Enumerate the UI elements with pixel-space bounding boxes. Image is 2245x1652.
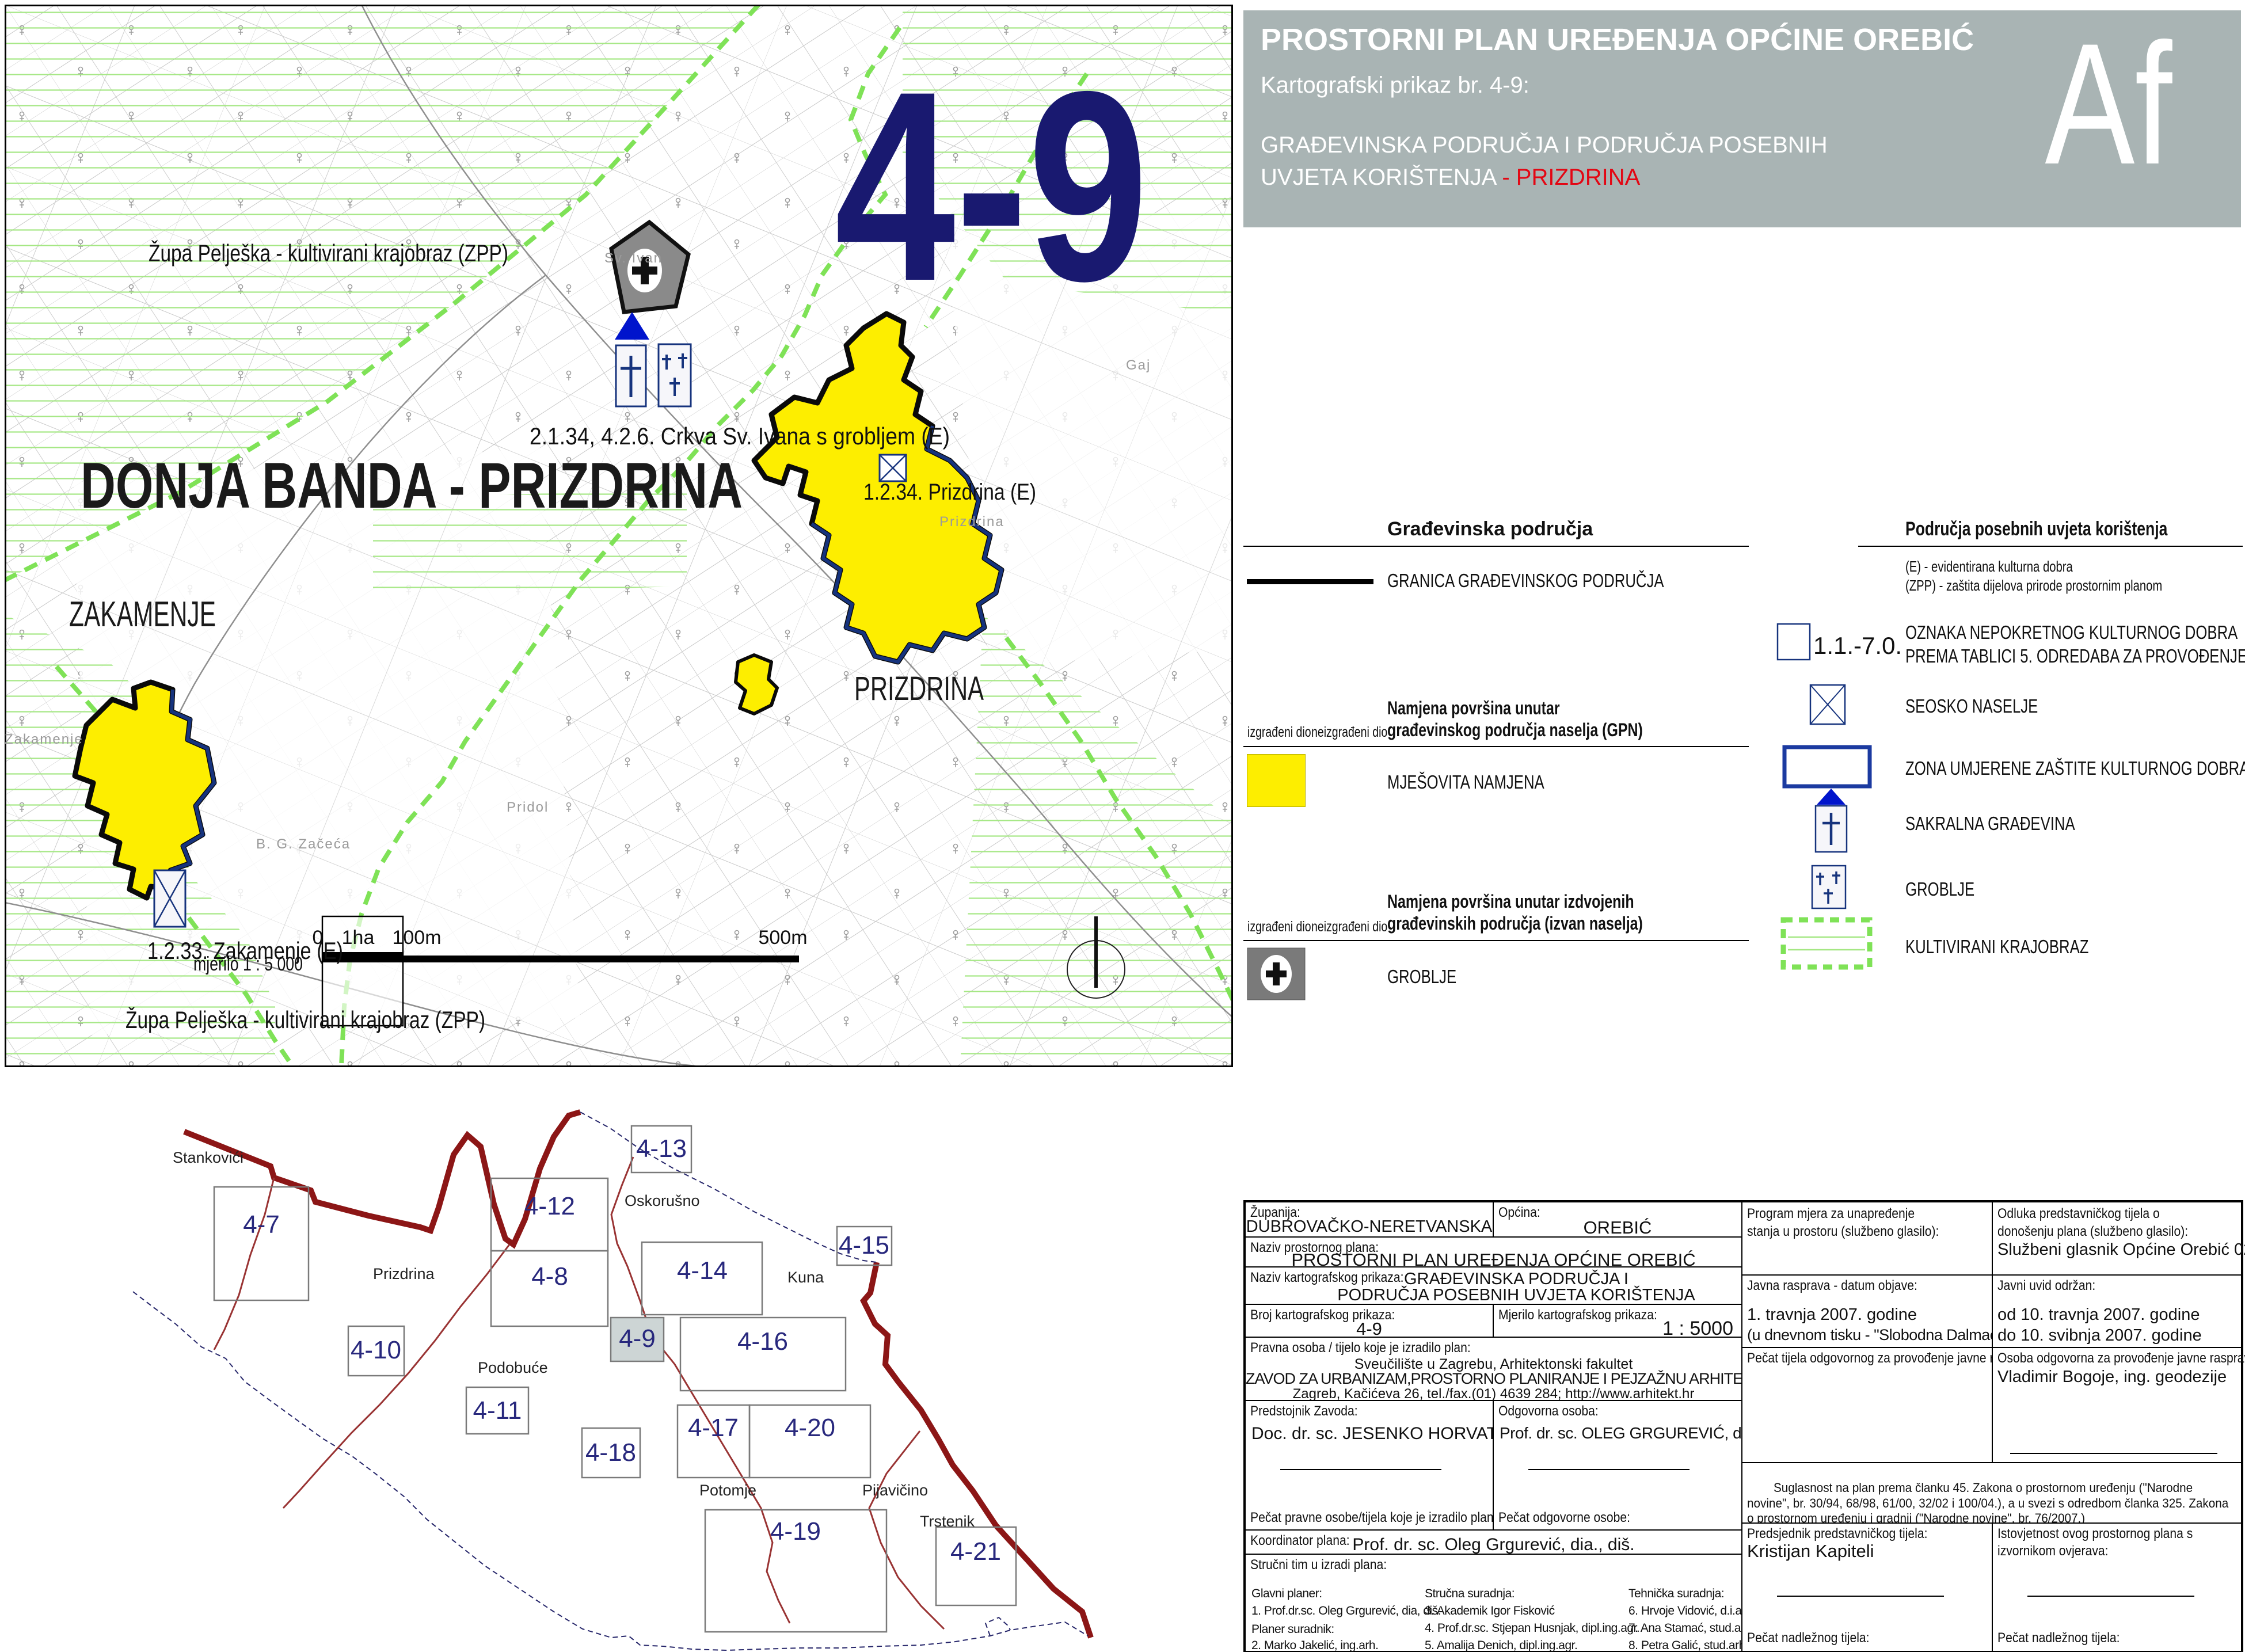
gpn-label: Namjena površina unutar građevinskog pod… bbox=[1387, 698, 1715, 741]
legend-right-divider bbox=[1858, 546, 2243, 547]
scale-0: 0 bbox=[313, 927, 324, 949]
cell-koordinator: Koordinator plana: Prof. dr. sc. Oleg Gr… bbox=[1245, 1529, 1742, 1555]
cell-naziv-prikaza: Naziv kartografskog prikaza: GRAĐEVINSKA… bbox=[1245, 1266, 1742, 1305]
plan-sheet: 4-9 DONJA BANDA - PRIZDRINA Župa Pelješk… bbox=[0, 0, 2245, 1652]
pecat-pravne-label: Pečat pravne osobe/tijela koje je izradi… bbox=[1250, 1510, 1497, 1526]
map-name-line2: UVJETA KORIŠTENJA - PRIZDRINA bbox=[1261, 165, 1640, 191]
opcina-value: OREBIĆ bbox=[1494, 1217, 1741, 1238]
zpp-label-bottom: Župa Pelješka - kultivirani krajobraz (Z… bbox=[125, 1006, 485, 1033]
place-pijavicino: Pijavičino bbox=[862, 1482, 928, 1499]
tile-label-4-11: 4-11 bbox=[473, 1396, 522, 1425]
scale-500m: 500m bbox=[758, 927, 807, 949]
odluka-label: Odluka predstavničkog tijela o donošenju… bbox=[1997, 1205, 2200, 1240]
zona-label: ZONA UMJERENE ZAŠTITE KULTURNOG DOBRA bbox=[1905, 758, 2245, 779]
istovjetnost-label-1: Istovjetnost ovog prostornog plana s bbox=[1997, 1526, 2193, 1542]
oznaka-square-icon bbox=[1776, 623, 1811, 661]
strucna-2: 4. Prof.dr.sc. Stjepan Husnjak, dipl.ing… bbox=[1425, 1621, 1639, 1635]
sakralna-map-icon bbox=[616, 345, 646, 406]
predstojnik-label: Predstojnik Zavoda: bbox=[1250, 1403, 1358, 1419]
cell-odluka: Odluka predstavničkog tijela o donošenju… bbox=[1992, 1201, 2242, 1276]
cell-predstojnik: Predstojnik Zavoda: Doc. dr. sc. JESENKO… bbox=[1245, 1400, 1494, 1531]
oznaka-code: 1.1.-7.0. bbox=[1813, 632, 1902, 660]
scale-100m: 100m bbox=[392, 927, 441, 949]
prizdrina-label: PRIZDRINA bbox=[854, 670, 984, 707]
izdvojena-label: Namjena površina unutar izdvojenih građe… bbox=[1387, 891, 1715, 935]
gray-label-pridol: Pridol bbox=[507, 800, 549, 815]
tile-label-4-16: 4-16 bbox=[737, 1327, 788, 1356]
strucna-label: Stručna suradnja: bbox=[1425, 1587, 1515, 1601]
osoba-signature-line bbox=[2010, 1453, 2217, 1454]
seosko-naselje-icon bbox=[1809, 684, 1846, 725]
cell-broj: Broj kartografskog prikaza: 4-9 bbox=[1245, 1304, 1494, 1338]
sheet-number: 4-9 bbox=[835, 35, 1148, 337]
cell-predsjednik: Predsjednik predstavničkog tijela: Krist… bbox=[1741, 1522, 1993, 1652]
uvid-label: Javni uvid održan: bbox=[1997, 1278, 2095, 1294]
mjesovita-label: MJEŠOVITA NAMJENA bbox=[1387, 771, 1544, 793]
cell-zupanija: Županija: DUBROVAČKO-NERETVANSKA bbox=[1245, 1201, 1494, 1238]
tile-label-4-19: 4-19 bbox=[770, 1517, 821, 1546]
tile-label-4-7: 4-7 bbox=[243, 1211, 280, 1239]
map-name-line2-text: UVJETA KORIŠTENJA bbox=[1261, 165, 1502, 190]
gray-label-gaj: Gaj bbox=[1126, 357, 1151, 373]
place-prizdrina: Prizdrina bbox=[373, 1265, 435, 1282]
tile-label-4-20: 4-20 bbox=[785, 1414, 835, 1442]
izdvojena-label-line2: građevinskih područja (izvan naselja) bbox=[1387, 913, 1643, 935]
osoba-label: Osoba odgovorna za provođenje javne rasp… bbox=[1997, 1350, 2245, 1366]
istovjetnost-signature-line bbox=[2027, 1596, 2194, 1597]
cell-suglasnost: Suglasnost na plan prema članku 45. Zako… bbox=[1741, 1462, 2242, 1524]
granica-label: GRANICA GRAĐEVINSKOG PODRUČJA bbox=[1387, 570, 1664, 592]
index-map: 4-7 4-12 4-13 4-8 4-14 4-15 4-10 4-9 4-1… bbox=[0, 1071, 1243, 1652]
map-name-highlight: - PRIZDRINA bbox=[1502, 165, 1640, 190]
javna-line2: (u dnevnom tisku - "Slobodna Dalmacija") bbox=[1747, 1326, 2022, 1344]
place-stankovici: Stankovići bbox=[173, 1149, 243, 1166]
mjesovita-swatch bbox=[1247, 754, 1306, 807]
groblje-right-label: GROBLJE bbox=[1905, 878, 1974, 900]
zpp-label-top: Župa Pelješka - kultivirani krajobraz (Z… bbox=[149, 239, 508, 267]
place-podobuce: Podobuće bbox=[478, 1359, 548, 1376]
zona-icon bbox=[1782, 745, 1872, 789]
predsjednik-value: Kristijan Kapiteli bbox=[1747, 1541, 1874, 1562]
planer-suradnik-value: 2. Marko Jakelić, ing.arh. bbox=[1251, 1639, 1378, 1652]
odgovorna-signature-line bbox=[1528, 1469, 1690, 1470]
gpn-label-line2: građevinskog područja naselja (GPN) bbox=[1387, 720, 1643, 741]
groblje-small-map-icon bbox=[659, 344, 691, 406]
sakralna-icon bbox=[1812, 787, 1850, 854]
tile-label-4-14: 4-14 bbox=[677, 1257, 728, 1285]
tehnicka-2: 7. Ana Stamać, stud.arh. bbox=[1628, 1621, 1754, 1635]
cell-pecat-tijela: Pečat tijela odgovornog za provođenje ja… bbox=[1741, 1347, 1993, 1463]
cell-osoba-odgovorna: Osoba odgovorna za provođenje javne rasp… bbox=[1992, 1347, 2242, 1463]
odluka-value: Službeni glasnik Općine Orebić 02/2008. bbox=[1997, 1240, 2245, 1259]
zakamenje-label: ZAKAMENJE bbox=[69, 595, 216, 634]
tile-label-4-10: 4-10 bbox=[351, 1336, 401, 1364]
scale-1ha: 1ha bbox=[342, 927, 375, 949]
izgradeni-dio-label-2: izgrađeni dio bbox=[1247, 919, 1311, 935]
koordinator-value: Prof. dr. sc. Oleg Grgurević, dia., diš. bbox=[1246, 1535, 1741, 1555]
planer-suradnik-label: Planer suradnik: bbox=[1251, 1623, 1334, 1636]
odgovorna-label: Odgovorna osoba: bbox=[1498, 1403, 1599, 1419]
seosko-naselje-icon-zakamenje bbox=[154, 870, 185, 927]
strucna-3: 5. Amalija Denich, dipl.ing.agr. bbox=[1425, 1639, 1577, 1652]
af-logo: Af bbox=[2045, 17, 2172, 190]
legend-left-divider-3 bbox=[1243, 940, 1749, 941]
groblje-left-label: GROBLJE bbox=[1387, 966, 1456, 988]
tile-label-4-18: 4-18 bbox=[585, 1438, 636, 1467]
oznaka-label-line2: PREMA TABLICI 5. ODREDABA ZA PROVOĐENJE bbox=[1905, 644, 2245, 668]
small-settlement-patch bbox=[736, 655, 777, 714]
plan-subtitle: Kartografski prikaz br. 4-9: bbox=[1261, 73, 1529, 98]
javna-label: Javna rasprava - datum objave: bbox=[1747, 1278, 1917, 1294]
tile-label-4-17: 4-17 bbox=[688, 1414, 739, 1442]
cell-mjerilo: Mjerilo kartografskog prikaza: 1 : 5000 bbox=[1493, 1304, 1742, 1338]
gray-label-zaceca: B. G. Začeća bbox=[256, 836, 351, 852]
naziv-prikaza-line2: PODRUČJA POSEBNIH UVJETA KORIŠTENJA bbox=[1297, 1286, 1735, 1305]
javna-line1: 1. travnja 2007. godine bbox=[1747, 1305, 1917, 1324]
note-e: (E) - evidentirana kulturna dobra bbox=[1905, 557, 2073, 576]
osoba-value: Vladimir Bogoje, ing. geodezije bbox=[1997, 1368, 2227, 1387]
strucni-tim-label: Stručni tim u izradi plana: bbox=[1250, 1557, 1387, 1573]
tehnicka-3: 8. Petra Galić, stud.arh. bbox=[1628, 1639, 1748, 1652]
suglasnost-line1: Suglasnost na plan prema članku 45. Zako… bbox=[1747, 1480, 2232, 1526]
cell-strucni-tim: Stručni tim u izradi plana: Glavni plane… bbox=[1245, 1554, 1742, 1652]
title-block: PROSTORNI PLAN UREĐENJA OPĆINE OREBIĆ Ka… bbox=[1243, 10, 2241, 227]
map-area-title: DONJA BANDA - PRIZDRINA bbox=[81, 450, 743, 522]
granica-line-swatch bbox=[1247, 579, 1373, 584]
strucna-1: 3. Akademik Igor Fisković bbox=[1425, 1604, 1555, 1618]
pravna-line2: ZAVOD ZA URBANIZAM,PROSTORNO PLANIRANJE … bbox=[1246, 1370, 1741, 1388]
place-trstenik: Trstenik bbox=[920, 1513, 975, 1530]
legend-left-divider-1 bbox=[1243, 546, 1749, 547]
place-kuna: Kuna bbox=[787, 1269, 824, 1286]
predstojnik-signature-line bbox=[1280, 1469, 1441, 1470]
tehnicka-label: Tehnička suradnja: bbox=[1628, 1587, 1724, 1601]
predstojnik-value: Doc. dr. sc. JESENKO HORVAT, dia. bbox=[1251, 1424, 1532, 1444]
groblje-swatch bbox=[1247, 947, 1306, 1000]
gray-label-sv-ivan: Sv. Ivan bbox=[604, 250, 663, 266]
neizgradeni-dio-label-2: neizgrađeni dio bbox=[1311, 919, 1387, 935]
legend-left-header: Građevinska područja bbox=[1387, 518, 1593, 540]
gray-label-zakamenje: Zakamenje bbox=[5, 732, 83, 747]
cell-odgovorna: Odgovorna osoba: Prof. dr. sc. OLEG GRGU… bbox=[1493, 1400, 1742, 1531]
tile-label-4-12: 4-12 bbox=[524, 1192, 575, 1220]
oznaka-label: OZNAKA NEPOKRETNOG KULTURNOG DOBRA PREMA… bbox=[1905, 621, 2245, 668]
sakralna-label: SAKRALNA GRAĐEVINA bbox=[1905, 813, 2075, 835]
tile-label-4-13: 4-13 bbox=[636, 1135, 687, 1163]
place-oskorusno: Oskorušno bbox=[625, 1192, 700, 1209]
cell-opcina: Općina: OREBIĆ bbox=[1493, 1201, 1742, 1238]
tile-label-4-15: 4-15 bbox=[839, 1231, 889, 1259]
predsjednik-label: Predsjednik predstavničkog tijela: bbox=[1747, 1526, 1927, 1542]
pecat-nadleznog-label-1: Pečat nadležnog tijela: bbox=[1747, 1630, 1870, 1646]
uvid-line2: do 10. svibnja 2007. godine bbox=[1997, 1326, 2202, 1345]
program-label: Program mjera za unapređenje stanja u pr… bbox=[1747, 1205, 1950, 1240]
scale-text: mjerilo 1 : 5 000 bbox=[193, 953, 303, 975]
pecat-nadleznog-label-2: Pečat nadležnog tijela: bbox=[1997, 1630, 2120, 1646]
cell-pravna-osoba: Pravna osoba / tijelo koje je izradilo p… bbox=[1245, 1337, 1742, 1401]
plan-title: PROSTORNI PLAN UREĐENJA OPĆINE OREBIĆ bbox=[1261, 22, 1974, 58]
cell-javna-rasprava: Javna rasprava - datum objave: 1. travnj… bbox=[1741, 1274, 1993, 1348]
pravna-label: Pravna osoba / tijelo koje je izradilo p… bbox=[1250, 1340, 1471, 1356]
predsjednik-signature-line bbox=[1777, 1596, 1944, 1597]
legend-left-divider-2 bbox=[1243, 746, 1749, 747]
cell-program-mjera: Program mjera za unapređenje stanja u pr… bbox=[1741, 1201, 1993, 1276]
uvid-line1: od 10. travnja 2007. godine bbox=[1997, 1305, 2200, 1324]
gpn-label-line1: Namjena površina unutar bbox=[1387, 698, 1560, 720]
cell-javni-uvid: Javni uvid održan: od 10. travnja 2007. … bbox=[1992, 1274, 2242, 1348]
kultivirani-label: KULTIVIRANI KRAJOBRAZ bbox=[1905, 936, 2088, 958]
glavni-planer-value: 1. Prof.dr.sc. Oleg Grgurević, dia, diš. bbox=[1251, 1604, 1441, 1618]
tile-label-4-8: 4-8 bbox=[531, 1262, 568, 1291]
seosko-label: SEOSKO NASELJE bbox=[1905, 695, 2038, 717]
main-map: 4-9 DONJA BANDA - PRIZDRINA Župa Pelješk… bbox=[5, 5, 1233, 1067]
izdvojena-label-line1: Namjena površina unutar izdvojenih bbox=[1387, 891, 1634, 913]
map-name-line1: GRAĐEVINSKA PODRUČJA I PODRUČJA POSEBNIH bbox=[1261, 132, 1828, 158]
church-label: 2.1.34, 4.2.6. Crkva Sv. Ivana s groblje… bbox=[530, 422, 950, 450]
gray-label-prizdrina: Prizdrina bbox=[939, 514, 1004, 530]
cell-naziv-plana: Naziv prostornog plana: PROSTORNI PLAN U… bbox=[1245, 1236, 1742, 1267]
prizdrina-e-label: 1.2.34. Prizdrina (E) bbox=[863, 479, 1036, 505]
note-zpp: (ZPP) - zaštita dijelova prirode prostor… bbox=[1905, 576, 2162, 595]
legend-notes: (E) - evidentirana kulturna dobra (ZPP) … bbox=[1905, 557, 2235, 595]
glavni-planer-label: Glavni planer: bbox=[1251, 1587, 1322, 1601]
oznaka-label-line1: OZNAKA NEPOKRETNOG KULTURNOG DOBRA bbox=[1905, 621, 2238, 644]
info-table: Županija: DUBROVAČKO-NERETVANSKA Općina:… bbox=[1243, 1200, 2243, 1652]
tile-label-4-21: 4-21 bbox=[950, 1537, 1001, 1566]
tile-label-4-9: 4-9 bbox=[619, 1324, 656, 1353]
izgradeni-dio-label: izgrađeni dio bbox=[1247, 724, 1311, 741]
legend-right-header: Područja posebnih uvjeta korištenja bbox=[1905, 518, 2167, 540]
cell-istovjetnost: Istovjetnost ovog prostornog plana s izv… bbox=[1992, 1522, 2242, 1652]
groblje-right-icon bbox=[1811, 865, 1847, 909]
istovjetnost-label-2: izvornikom ovjerava: bbox=[1997, 1543, 2109, 1559]
kultivirani-icon bbox=[1780, 916, 1873, 970]
neizgradeni-dio-label: neizgrađeni dio bbox=[1311, 724, 1387, 741]
tehnicka-1: 6. Hrvoje Vidović, d.i.a. bbox=[1628, 1604, 1745, 1618]
place-potomje: Potomje bbox=[699, 1482, 756, 1499]
seosko-naselje-icon-prizdrina bbox=[880, 455, 906, 481]
pecat-odgovorne-label: Pečat odgovorne osobe: bbox=[1498, 1510, 1630, 1526]
zupanija-value: DUBROVAČKO-NERETVANSKA bbox=[1246, 1217, 1493, 1236]
mjerilo-label: Mjerilo kartografskog prikaza: bbox=[1498, 1307, 1657, 1323]
